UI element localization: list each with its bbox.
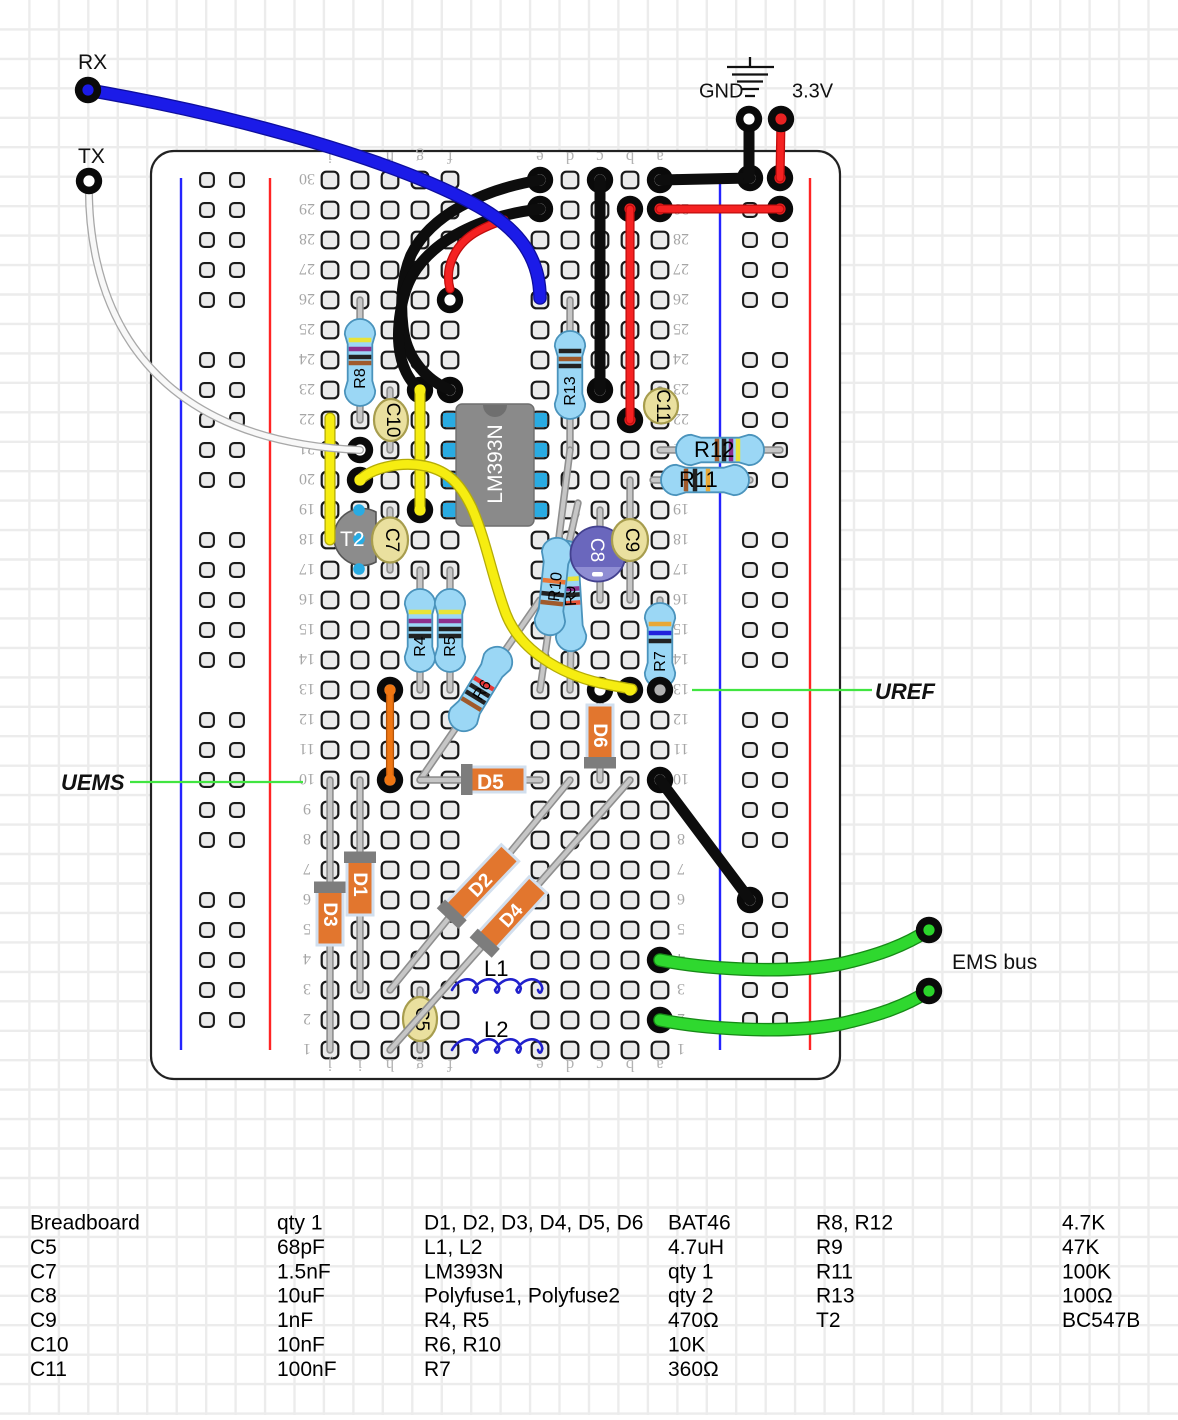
- svg-text:i: i: [357, 1056, 362, 1075]
- svg-text:D1, D2, D3, D4, D5, D6: D1, D2, D3, D4, D5, D6: [424, 1212, 643, 1235]
- svg-text:3: 3: [677, 980, 685, 997]
- svg-text:C10: C10: [382, 403, 403, 438]
- svg-text:C8: C8: [586, 538, 607, 562]
- svg-text:C9: C9: [30, 1309, 57, 1332]
- svg-text:R8, R12: R8, R12: [816, 1212, 893, 1235]
- svg-text:C8: C8: [30, 1285, 57, 1308]
- svg-text:d: d: [565, 1056, 574, 1075]
- svg-text:26: 26: [299, 290, 315, 307]
- svg-text:e: e: [536, 1056, 544, 1075]
- svg-text:R9: R9: [816, 1236, 843, 1259]
- svg-text:10uF: 10uF: [277, 1285, 325, 1308]
- svg-text:26: 26: [673, 290, 689, 307]
- svg-text:470Ω: 470Ω: [668, 1309, 719, 1332]
- svg-text:LM393N: LM393N: [484, 424, 507, 503]
- svg-text:b: b: [626, 148, 635, 167]
- svg-text:6: 6: [677, 890, 685, 907]
- svg-text:UREF: UREF: [875, 679, 935, 704]
- svg-text:R13: R13: [562, 376, 579, 405]
- svg-text:15: 15: [299, 620, 315, 637]
- svg-text:1: 1: [303, 1040, 311, 1057]
- svg-text:3: 3: [303, 980, 311, 997]
- svg-text:c: c: [596, 1056, 604, 1075]
- svg-text:R11: R11: [816, 1260, 853, 1283]
- svg-text:18: 18: [299, 530, 315, 547]
- svg-text:e: e: [536, 148, 544, 167]
- svg-text:C11: C11: [652, 389, 673, 422]
- svg-text:14: 14: [673, 650, 689, 667]
- svg-text:2: 2: [303, 1010, 311, 1027]
- svg-text:1nF: 1nF: [277, 1309, 313, 1332]
- svg-text:C11: C11: [30, 1358, 67, 1381]
- svg-text:5: 5: [677, 920, 685, 937]
- svg-text:19: 19: [299, 500, 315, 517]
- svg-text:16: 16: [299, 590, 315, 607]
- svg-text:C7: C7: [30, 1260, 57, 1283]
- svg-text:10: 10: [299, 770, 315, 787]
- svg-text:24: 24: [299, 350, 315, 367]
- svg-text:h: h: [385, 1056, 394, 1075]
- svg-text:16: 16: [673, 590, 689, 607]
- svg-text:3.3V: 3.3V: [792, 81, 834, 103]
- svg-text:qty 1: qty 1: [668, 1260, 714, 1283]
- svg-text:b: b: [626, 1056, 635, 1075]
- svg-text:47K: 47K: [1062, 1236, 1099, 1259]
- svg-text:R10: R10: [546, 571, 566, 602]
- svg-text:4: 4: [303, 950, 311, 967]
- svg-text:f: f: [447, 1056, 453, 1075]
- svg-text:27: 27: [673, 260, 689, 277]
- svg-text:68pF: 68pF: [277, 1236, 325, 1259]
- svg-text:D6: D6: [589, 723, 610, 747]
- svg-text:8: 8: [677, 830, 685, 847]
- svg-text:BAT46: BAT46: [668, 1212, 731, 1235]
- svg-text:D3: D3: [319, 902, 340, 926]
- svg-text:100nF: 100nF: [277, 1358, 337, 1381]
- svg-text:23: 23: [299, 380, 315, 397]
- svg-text:C5: C5: [30, 1236, 57, 1259]
- svg-text:7: 7: [303, 860, 311, 877]
- svg-text:T2: T2: [816, 1309, 841, 1332]
- svg-text:18: 18: [673, 530, 689, 547]
- svg-text:17: 17: [299, 560, 315, 577]
- svg-text:20: 20: [299, 470, 315, 487]
- svg-text:EMS bus: EMS bus: [952, 951, 1037, 974]
- svg-text:10nF: 10nF: [277, 1334, 325, 1357]
- svg-text:13: 13: [673, 680, 689, 697]
- svg-text:R7: R7: [652, 651, 669, 672]
- svg-text:R7: R7: [424, 1358, 451, 1381]
- svg-text:UEMS: UEMS: [61, 770, 125, 795]
- svg-text:27: 27: [299, 260, 315, 277]
- svg-text:10K: 10K: [668, 1334, 705, 1357]
- svg-text:R5: R5: [442, 636, 459, 657]
- svg-text:30: 30: [299, 170, 315, 187]
- svg-text:a: a: [656, 148, 664, 167]
- svg-text:R8: R8: [352, 368, 369, 389]
- svg-text:4.7uH: 4.7uH: [668, 1236, 724, 1259]
- svg-text:25: 25: [299, 320, 315, 337]
- svg-text:22: 22: [299, 410, 315, 427]
- svg-text:j: j: [328, 1056, 334, 1075]
- svg-text:R13: R13: [816, 1285, 855, 1308]
- svg-text:T2: T2: [340, 528, 365, 551]
- svg-text:D5: D5: [477, 771, 504, 794]
- svg-text:Polyfuse1, Polyfuse2: Polyfuse1, Polyfuse2: [424, 1285, 620, 1308]
- svg-text:qty 1: qty 1: [277, 1212, 323, 1235]
- svg-text:9: 9: [303, 800, 311, 817]
- svg-text:17: 17: [673, 560, 689, 577]
- svg-text:360Ω: 360Ω: [668, 1358, 719, 1381]
- svg-text:L1, L2: L1, L2: [424, 1236, 482, 1259]
- svg-text:f: f: [447, 148, 453, 167]
- svg-text:c: c: [596, 148, 604, 167]
- svg-text:7: 7: [677, 860, 685, 877]
- svg-text:5: 5: [303, 920, 311, 937]
- svg-text:12: 12: [673, 710, 689, 727]
- svg-text:BC547B: BC547B: [1062, 1309, 1140, 1332]
- svg-text:R4: R4: [412, 636, 429, 657]
- svg-text:100Ω: 100Ω: [1062, 1285, 1113, 1308]
- svg-text:RX: RX: [78, 51, 107, 74]
- svg-text:qty 2: qty 2: [668, 1285, 714, 1308]
- svg-text:100K: 100K: [1062, 1260, 1111, 1283]
- svg-text:10: 10: [673, 770, 689, 787]
- svg-text:8: 8: [303, 830, 311, 847]
- svg-text:1.5nF: 1.5nF: [277, 1260, 331, 1283]
- svg-text:28: 28: [299, 230, 315, 247]
- svg-text:15: 15: [673, 620, 689, 637]
- svg-text:1: 1: [677, 1040, 685, 1057]
- svg-text:Breadboard: Breadboard: [30, 1212, 140, 1235]
- svg-text:R6, R10: R6, R10: [424, 1334, 501, 1357]
- svg-text:TX: TX: [78, 145, 105, 168]
- svg-text:6: 6: [303, 890, 311, 907]
- svg-text:29: 29: [299, 200, 315, 217]
- svg-text:a: a: [656, 1056, 664, 1075]
- svg-text:R12: R12: [694, 437, 734, 462]
- svg-text:C10: C10: [30, 1334, 69, 1357]
- svg-text:28: 28: [673, 230, 689, 247]
- svg-text:g: g: [415, 148, 424, 167]
- svg-text:C9: C9: [621, 528, 642, 552]
- svg-text:13: 13: [299, 680, 315, 697]
- svg-text:d: d: [565, 148, 574, 167]
- svg-text:C7: C7: [381, 528, 402, 552]
- svg-text:12: 12: [299, 710, 315, 727]
- svg-text:14: 14: [299, 650, 315, 667]
- svg-text:g: g: [415, 1056, 424, 1075]
- svg-text:R4, R5: R4, R5: [424, 1309, 489, 1332]
- svg-text:L1: L1: [484, 956, 508, 981]
- svg-text:23: 23: [673, 380, 689, 397]
- svg-text:R11: R11: [679, 467, 718, 492]
- svg-text:GND: GND: [699, 81, 743, 103]
- svg-text:11: 11: [673, 740, 688, 757]
- svg-text:11: 11: [299, 740, 314, 757]
- svg-text:LM393N: LM393N: [424, 1260, 503, 1283]
- svg-text:19: 19: [673, 500, 689, 517]
- svg-text:24: 24: [673, 350, 689, 367]
- svg-text:25: 25: [673, 320, 689, 337]
- svg-text:4.7K: 4.7K: [1062, 1212, 1105, 1235]
- svg-text:D1: D1: [349, 872, 370, 897]
